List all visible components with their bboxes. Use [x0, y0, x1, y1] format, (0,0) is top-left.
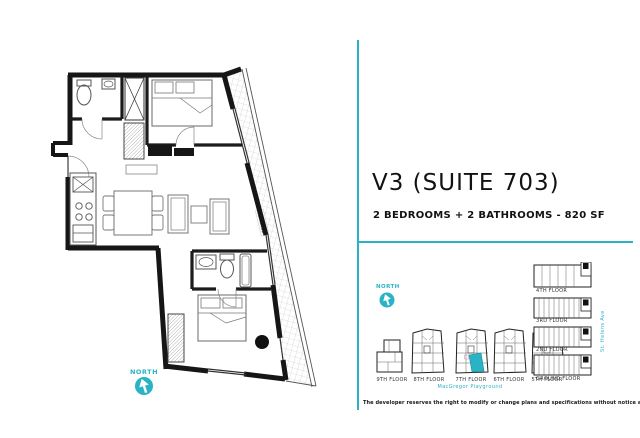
tower-floor-label: 7TH FLOOR — [451, 377, 491, 383]
terrace-area: TERRACE — [226, 68, 316, 387]
suite-title: V3 (SUITE 703) — [372, 170, 560, 196]
keyplan-ground — [534, 355, 591, 375]
suite-subtitle: 2 BEDROOMS + 2 BATHROOMS - 820 SF — [373, 210, 605, 221]
keyplan-2nd — [534, 327, 591, 347]
keyplan-8th — [412, 329, 444, 373]
tower-floor-label: 9TH FLOOR — [372, 377, 412, 383]
structural-column — [255, 335, 269, 349]
north-compass-main: NORTH — [130, 368, 158, 395]
panel-divider-vertical — [357, 40, 359, 410]
tower-floor-label: 6TH FLOOR — [489, 377, 529, 383]
bedroom-2 — [198, 295, 246, 341]
keyplan-4th — [534, 262, 591, 287]
park-label: MacGregor Playground — [380, 384, 560, 390]
disclaimer-text: The developer reserves the right to modi… — [363, 400, 635, 406]
kitchen — [70, 173, 96, 245]
street-label: St. Helens Ave — [600, 302, 606, 352]
highlighted-suite-unit — [469, 353, 484, 372]
podium-floor-label: 2ND FLOOR — [536, 347, 568, 353]
floorplan-sheet: TERRACE — [0, 0, 640, 438]
keyplan-9th — [377, 340, 402, 372]
suite-floorplan-drawing: TERRACE — [40, 55, 330, 407]
laundry-closet — [125, 78, 144, 120]
north-label-keyplan: NORTH — [376, 284, 400, 290]
living-room — [168, 195, 229, 234]
bathroom-1 — [77, 79, 115, 139]
keyplan-3rd — [534, 298, 591, 318]
hall-closet — [124, 123, 144, 159]
bathroom-2 — [196, 254, 251, 307]
podium-floor-label: 4TH FLOOR — [536, 288, 567, 294]
title-divider-rule — [357, 241, 633, 243]
tower-floor-label: 8TH FLOOR — [409, 377, 449, 383]
dining-set — [103, 191, 163, 235]
bedroom-2-closet — [168, 314, 184, 362]
bedroom-1 — [152, 80, 212, 145]
north-label-main: NORTH — [130, 368, 158, 376]
podium-floor-label: GROUND FLOOR — [536, 376, 581, 382]
north-icon-keyplan — [378, 291, 396, 309]
entry-door — [68, 156, 89, 177]
podium-floor-label: 3RD FLOOR — [536, 318, 568, 324]
entry-alcove-walls — [53, 143, 70, 156]
keyplan-6th — [494, 329, 526, 373]
